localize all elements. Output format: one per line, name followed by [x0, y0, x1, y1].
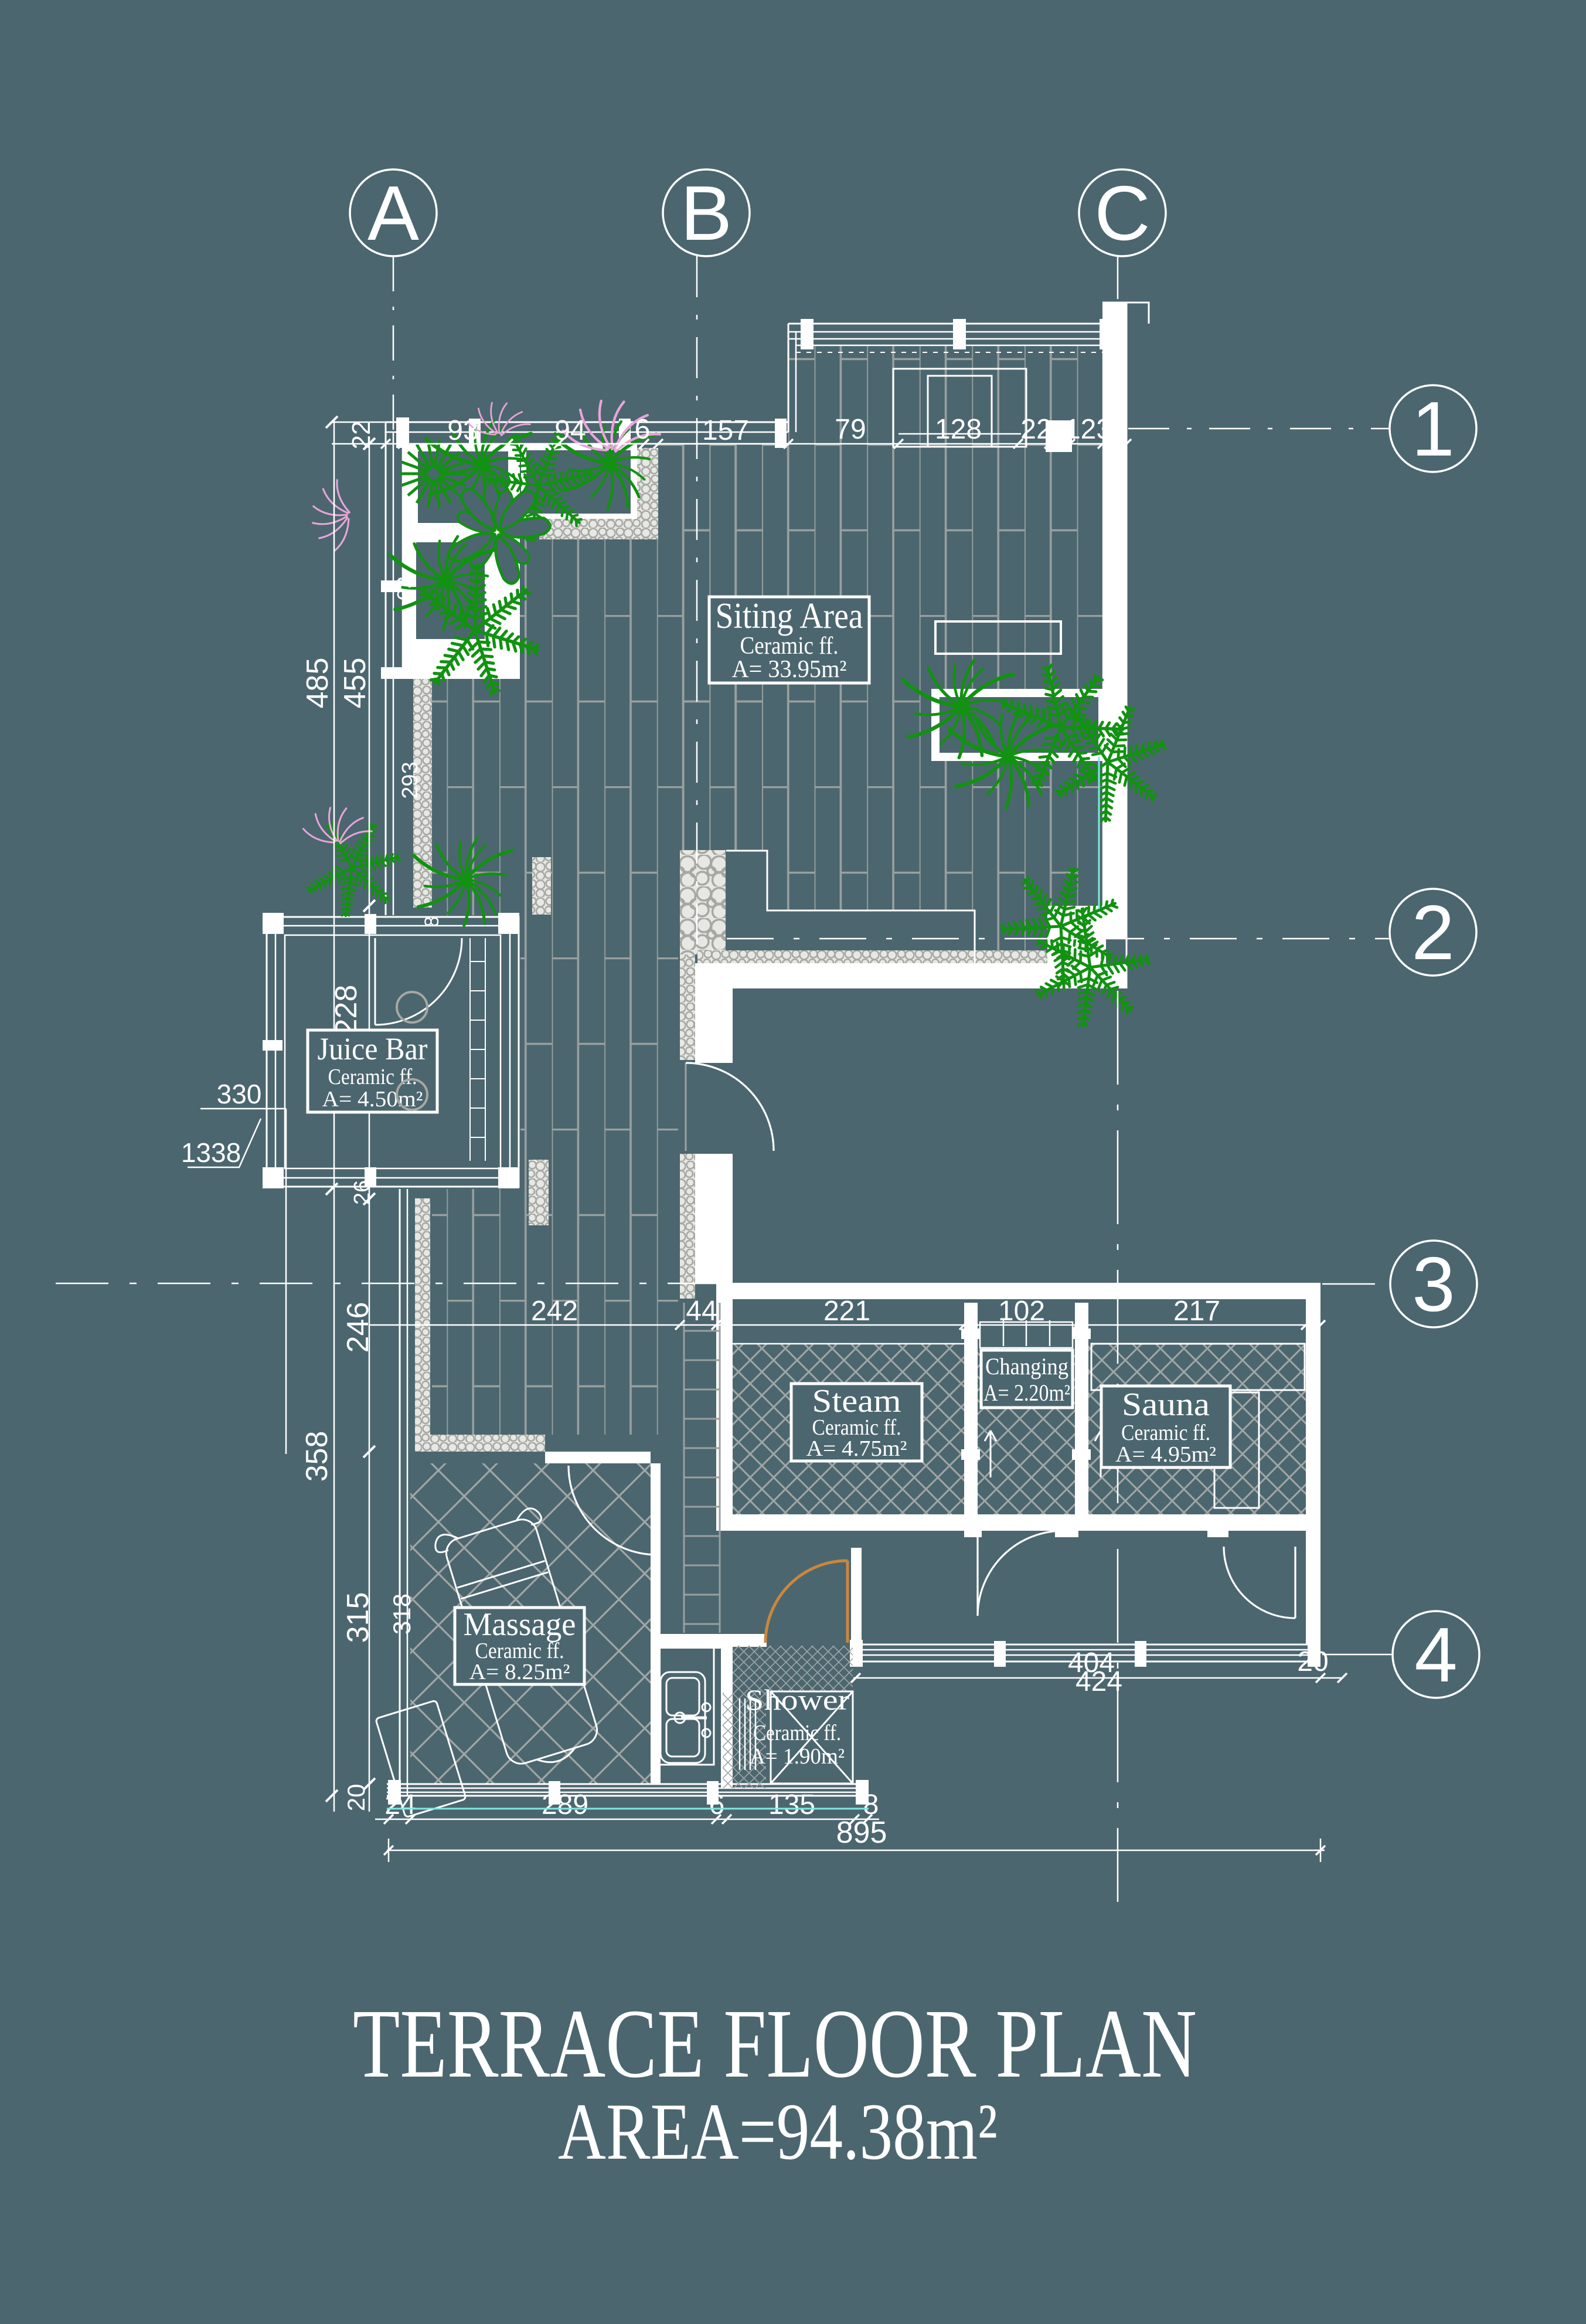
- svg-text:358: 358: [300, 1431, 334, 1482]
- svg-text:22: 22: [347, 421, 376, 450]
- svg-text:6: 6: [635, 414, 651, 445]
- svg-text:246: 246: [341, 1302, 375, 1353]
- svg-text:Ceramic ff.: Ceramic ff.: [328, 1065, 417, 1089]
- svg-text:217: 217: [1173, 1296, 1220, 1327]
- svg-text:157: 157: [702, 415, 749, 446]
- svg-text:289: 289: [542, 1789, 588, 1820]
- svg-text:Siting Area: Siting Area: [716, 596, 863, 636]
- svg-text:A= 8.25m²: A= 8.25m²: [469, 1660, 570, 1684]
- svg-text:26: 26: [350, 1180, 375, 1205]
- svg-text:B: B: [680, 170, 732, 256]
- svg-text:455: 455: [338, 658, 372, 709]
- svg-text:20: 20: [1297, 1646, 1328, 1677]
- svg-text:63: 63: [393, 576, 418, 601]
- svg-text:A: A: [367, 170, 419, 256]
- svg-text:A= 1.90m²: A= 1.90m²: [750, 1744, 845, 1769]
- svg-text:128: 128: [935, 414, 982, 445]
- svg-text:228: 228: [329, 985, 363, 1036]
- svg-text:135: 135: [768, 1789, 815, 1820]
- svg-text:Ceramic ff.: Ceramic ff.: [753, 1721, 841, 1745]
- svg-text:102: 102: [998, 1296, 1045, 1327]
- svg-text:24: 24: [384, 1789, 416, 1820]
- svg-text:Shower: Shower: [745, 1683, 849, 1716]
- svg-text:A= 4.50m²: A= 4.50m²: [322, 1087, 423, 1112]
- svg-text:1338: 1338: [181, 1137, 241, 1168]
- svg-text:3: 3: [1412, 1241, 1455, 1327]
- svg-text:79: 79: [835, 414, 866, 445]
- svg-text:A= 2.20m²: A= 2.20m²: [983, 1380, 1070, 1406]
- svg-text:A= 4.75m²: A= 4.75m²: [806, 1436, 907, 1461]
- svg-text:1: 1: [1411, 386, 1454, 472]
- svg-text:Steam: Steam: [812, 1383, 901, 1419]
- svg-text:4: 4: [1414, 1612, 1457, 1698]
- svg-text:AREA=94.38m²: AREA=94.38m²: [558, 2087, 998, 2176]
- svg-text:A= 33.95m²: A= 33.95m²: [732, 656, 847, 683]
- svg-text:330: 330: [217, 1079, 262, 1109]
- svg-text:C: C: [1094, 170, 1150, 256]
- svg-text:315: 315: [341, 1592, 375, 1643]
- svg-text:Changing: Changing: [985, 1353, 1068, 1380]
- svg-text:424: 424: [1076, 1666, 1122, 1697]
- svg-text:Sauna: Sauna: [1122, 1387, 1210, 1423]
- svg-text:895: 895: [836, 1816, 887, 1850]
- svg-text:22: 22: [1020, 414, 1051, 445]
- svg-text:20: 20: [342, 1784, 370, 1812]
- svg-text:44: 44: [686, 1296, 717, 1327]
- svg-text:2: 2: [1411, 889, 1454, 976]
- svg-text:A= 4.95m²: A= 4.95m²: [1115, 1442, 1216, 1467]
- svg-text:485: 485: [301, 658, 335, 709]
- svg-text:94: 94: [554, 415, 586, 446]
- svg-text:TERRACE FLOOR PLAN: TERRACE FLOOR PLAN: [353, 1989, 1197, 2098]
- svg-text:8: 8: [421, 916, 443, 927]
- svg-text:123: 123: [1065, 414, 1112, 445]
- svg-text:Juice Bar: Juice Bar: [318, 1031, 428, 1066]
- svg-text:242: 242: [531, 1296, 578, 1327]
- svg-text:293: 293: [398, 762, 423, 799]
- svg-text:Massage: Massage: [464, 1606, 576, 1643]
- svg-text:221: 221: [823, 1296, 870, 1327]
- svg-text:318: 318: [388, 1593, 416, 1635]
- svg-text:6: 6: [709, 1789, 725, 1820]
- svg-text:Ceramic ff.: Ceramic ff.: [1121, 1421, 1210, 1445]
- svg-text:93: 93: [447, 415, 478, 446]
